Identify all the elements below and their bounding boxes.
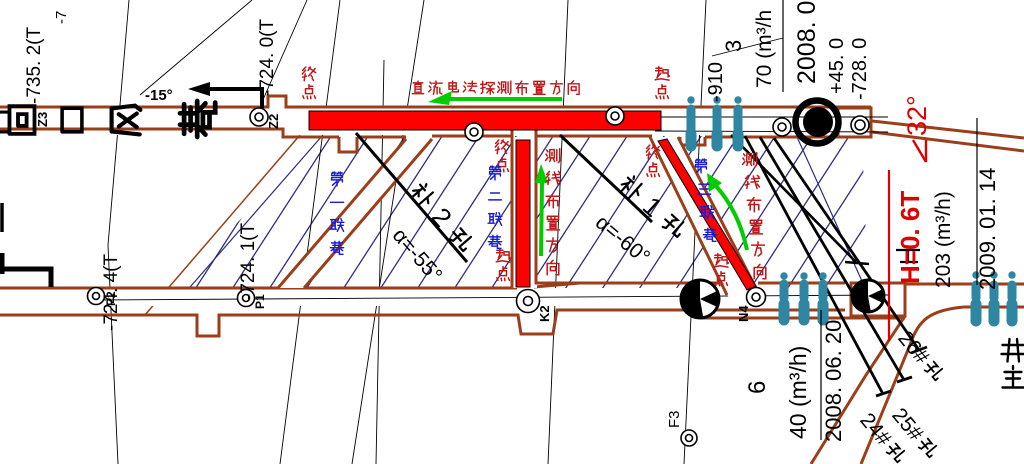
- svg-text:Z2: Z2: [266, 114, 281, 129]
- svg-text:K2: K2: [537, 305, 552, 322]
- svg-text:32°: 32°: [902, 95, 932, 136]
- svg-text:-724. 1(T: -724. 1(T: [238, 223, 259, 300]
- svg-text:P2: P2: [104, 291, 118, 306]
- svg-text:-910: -910: [705, 62, 727, 102]
- svg-text:H=0. 6T: H=0. 6T: [895, 191, 925, 284]
- svg-text:2009. 01. 14: 2009. 01. 14: [975, 168, 1000, 290]
- svg-text:-724. 0(T: -724. 0(T: [257, 19, 278, 96]
- svg-text:2008. 06. 20: 2008. 06. 20: [821, 320, 846, 442]
- svg-text:-728. 0: -728. 0: [849, 38, 871, 100]
- svg-text:P1: P1: [253, 294, 267, 309]
- svg-text:N4: N4: [736, 305, 751, 322]
- svg-text:6: 6: [744, 381, 771, 394]
- svg-text:203 (m³/h): 203 (m³/h): [932, 191, 955, 288]
- svg-text:40 (m³/h): 40 (m³/h): [785, 346, 811, 439]
- svg-text:+45. 0: +45. 0: [826, 38, 848, 94]
- svg-text:70 (m³/h: 70 (m³/h: [753, 10, 776, 88]
- svg-text:-735. 2(T: -735. 2(T: [24, 27, 45, 104]
- svg-text:Z3: Z3: [35, 112, 50, 127]
- svg-text:-7: -7: [53, 11, 70, 24]
- svg-text:F3: F3: [666, 410, 683, 428]
- svg-text:2008. 06: 2008. 06: [793, 0, 821, 84]
- svg-text:3: 3: [721, 40, 746, 52]
- svg-text:-15°: -15°: [145, 87, 173, 104]
